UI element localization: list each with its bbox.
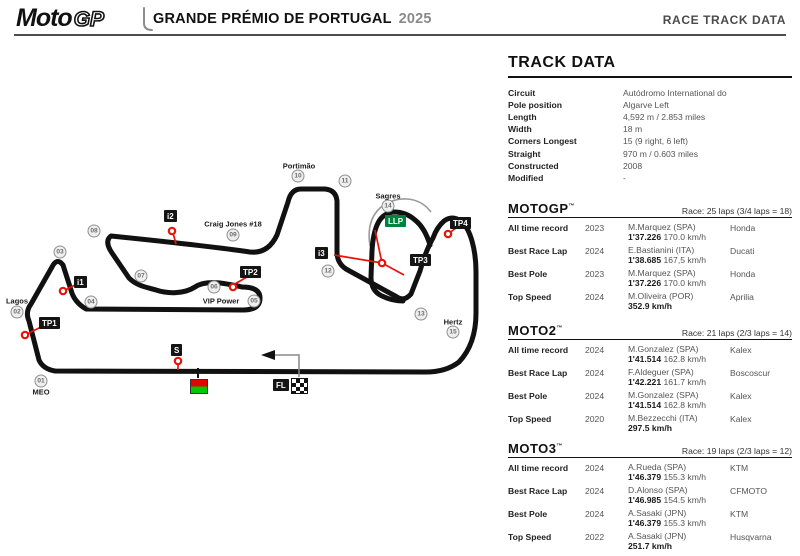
corner-marker-08: 08 bbox=[88, 225, 101, 238]
map-label-05: VIP Power bbox=[203, 297, 240, 306]
record-speed: 161.7 km/h bbox=[664, 377, 707, 387]
record-time: 1'41.514 bbox=[628, 400, 661, 410]
record-label: All time record bbox=[508, 344, 585, 367]
trademark-symbol: ™ bbox=[557, 326, 563, 332]
section-moto2-race-info: Race: 21 laps (2/3 laps = 14) bbox=[682, 328, 792, 338]
record-rider-cell: A.Sasaki (JPN) 1'46.379 155.3 km/h bbox=[628, 508, 730, 531]
record-time: 1'42.221 bbox=[628, 377, 661, 387]
record-label: Top Speed bbox=[508, 291, 585, 314]
section-moto2-title: MOTO2™ bbox=[508, 323, 563, 338]
record-rider: M.Gonzalez (SPA) bbox=[628, 344, 730, 354]
race-track-data-page: MotoGP GRANDE PRÉMIO DE PORTUGAL 2025 RA… bbox=[0, 0, 800, 556]
corner-marker-03: 03 bbox=[54, 246, 67, 259]
record-rider-cell: M.Marquez (SPA) 1'37.226 170.0 km/h bbox=[628, 268, 730, 291]
corner-marker-04: 04 bbox=[85, 296, 98, 309]
record-rider-cell: D.Alonso (SPA) 1'46.985 154.5 km/h bbox=[628, 485, 730, 508]
map-label-15: Hertz bbox=[444, 318, 463, 327]
track-data-label: Pole position bbox=[508, 100, 623, 110]
record-row: Best Race Lap 2024 E.Bastianini (ITA) 1'… bbox=[508, 245, 792, 268]
record-year: 2024 bbox=[585, 390, 628, 413]
record-rider-cell: M.Oliveira (POR) 352.9 km/h bbox=[628, 291, 730, 314]
record-year: 2024 bbox=[585, 485, 628, 508]
record-year: 2024 bbox=[585, 291, 628, 314]
record-row: Best Race Lap 2024 F.Aldeguer (SPA) 1'42… bbox=[508, 367, 792, 390]
record-time: 1'46.379 bbox=[628, 518, 661, 528]
map-label-02: Lagos bbox=[6, 297, 28, 306]
record-rider: A.Sasaki (JPN) bbox=[628, 531, 730, 541]
record-time: 1'37.226 bbox=[628, 278, 661, 288]
track-marker-i2: i2 bbox=[164, 210, 177, 222]
track-marker-llp: LLP bbox=[385, 215, 406, 227]
record-label: Best Pole bbox=[508, 508, 585, 531]
record-rider: M.Oliveira (POR) bbox=[628, 291, 730, 301]
track-marker-s: S bbox=[171, 344, 182, 356]
record-bike: Husqvarna bbox=[730, 531, 792, 554]
section-moto3-race-info: Race: 19 laps (2/3 laps = 12) bbox=[682, 446, 792, 456]
record-time: 1'46.379 bbox=[628, 472, 661, 482]
record-speed: 167,5 km/h bbox=[664, 255, 707, 265]
record-year: 2022 bbox=[585, 531, 628, 554]
record-row: Best Pole 2024 A.Sasaki (JPN) 1'46.379 1… bbox=[508, 508, 792, 531]
record-speed: 162.8 km/h bbox=[664, 354, 707, 364]
track-marker-tp4: TP4 bbox=[450, 217, 471, 229]
map-label-10: Portimão bbox=[283, 162, 316, 171]
track-data-row: Width 18 m bbox=[508, 123, 792, 135]
corner-marker-11: 11 bbox=[339, 175, 352, 188]
track-data-row: Constructed 2008 bbox=[508, 160, 792, 172]
track-data-row: Corners Longest 15 (9 right, 6 left) bbox=[508, 135, 792, 147]
record-bike: KTM bbox=[730, 508, 792, 531]
start-lights-flag bbox=[190, 379, 208, 394]
corner-marker-01: 01 bbox=[35, 375, 48, 388]
trademark-symbol: ™ bbox=[557, 444, 563, 450]
record-year: 2023 bbox=[585, 268, 628, 291]
record-time-line: 1'37.226 170.0 km/h bbox=[628, 232, 730, 242]
record-row: Best Pole 2024 M.Gonzalez (SPA) 1'41.514… bbox=[508, 390, 792, 413]
record-time-line: 251.7 km/h bbox=[628, 541, 730, 551]
record-bike: Honda bbox=[730, 222, 792, 245]
section-motogp-title: MOTOGP™ bbox=[508, 201, 575, 216]
corner-marker-14: 14 bbox=[382, 200, 395, 213]
record-speed: 154.5 km/h bbox=[664, 495, 707, 505]
record-row: All time record 2023 M.Marquez (SPA) 1'3… bbox=[508, 222, 792, 245]
record-label: All time record bbox=[508, 222, 585, 245]
track-marker-i1: i1 bbox=[74, 276, 87, 288]
record-bike: Kalex bbox=[730, 344, 792, 367]
record-rider: A.Sasaki (JPN) bbox=[628, 508, 730, 518]
record-rider: M.Gonzalez (SPA) bbox=[628, 390, 730, 400]
record-row: Best Race Lap 2024 D.Alonso (SPA) 1'46.9… bbox=[508, 485, 792, 508]
record-time: 352.9 km/h bbox=[628, 301, 672, 311]
record-time-line: 1'38.685 167,5 km/h bbox=[628, 255, 730, 265]
corner-marker-02: 02 bbox=[11, 306, 24, 319]
record-rider: A.Rueda (SPA) bbox=[628, 462, 730, 472]
record-year: 2024 bbox=[585, 508, 628, 531]
track-marker-tp1: TP1 bbox=[39, 317, 60, 329]
record-bike: Honda bbox=[730, 268, 792, 291]
track-data-label: Constructed bbox=[508, 161, 623, 171]
section-moto3-header: MOTO3™ Race: 19 laps (2/3 laps = 12) bbox=[508, 436, 792, 458]
record-bike: Kalex bbox=[730, 390, 792, 413]
corner-marker-13: 13 bbox=[415, 308, 428, 321]
record-bike: CFMOTO bbox=[730, 485, 792, 508]
record-label: Best Pole bbox=[508, 268, 585, 291]
record-rider: D.Alonso (SPA) bbox=[628, 485, 730, 495]
record-label: Best Pole bbox=[508, 390, 585, 413]
record-label: Top Speed bbox=[508, 531, 585, 554]
record-year: 2024 bbox=[585, 462, 628, 485]
record-year: 2024 bbox=[585, 245, 628, 268]
record-time: 1'46.985 bbox=[628, 495, 661, 505]
record-label: Top Speed bbox=[508, 413, 585, 436]
record-time-line: 297.5 km/h bbox=[628, 423, 730, 433]
section-moto3-title: MOTO3™ bbox=[508, 441, 563, 456]
track-data-value: 4,592 m / 2.853 miles bbox=[623, 112, 792, 122]
record-rider-cell: M.Gonzalez (SPA) 1'41.514 162.8 km/h bbox=[628, 390, 730, 413]
record-speed: 155.3 km/h bbox=[664, 518, 707, 528]
section-title-text: MOTO2 bbox=[508, 323, 557, 338]
record-rider: M.Marquez (SPA) bbox=[628, 268, 730, 278]
map-label-01: MEO bbox=[32, 388, 49, 397]
record-time: 251.7 km/h bbox=[628, 541, 672, 551]
record-label: Best Race Lap bbox=[508, 245, 585, 268]
record-time: 1'37.226 bbox=[628, 232, 661, 242]
record-speed: 170.0 km/h bbox=[664, 232, 707, 242]
record-year: 2020 bbox=[585, 413, 628, 436]
record-rider: M.Bezzecchi (ITA) bbox=[628, 413, 730, 423]
section-moto2: MOTO2™ Race: 21 laps (2/3 laps = 14) All… bbox=[508, 318, 792, 436]
section-motogp: MOTOGP™ Race: 25 laps (3/4 laps = 18) Al… bbox=[508, 196, 792, 314]
record-rider-cell: E.Bastianini (ITA) 1'38.685 167,5 km/h bbox=[628, 245, 730, 268]
track-marker-tp3: TP3 bbox=[410, 254, 431, 266]
section-moto2-rows: All time record 2024 M.Gonzalez (SPA) 1'… bbox=[508, 344, 792, 436]
corner-marker-09: 09 bbox=[227, 229, 240, 242]
section-title-text: MOTO3 bbox=[508, 441, 557, 456]
record-row: All time record 2024 A.Rueda (SPA) 1'46.… bbox=[508, 462, 792, 485]
record-time-line: 1'46.379 155.3 km/h bbox=[628, 518, 730, 528]
record-label: Best Race Lap bbox=[508, 485, 585, 508]
section-motogp-race-info: Race: 25 laps (3/4 laps = 18) bbox=[682, 206, 792, 216]
section-moto3-rows: All time record 2024 A.Rueda (SPA) 1'46.… bbox=[508, 462, 792, 554]
track-data-value: 15 (9 right, 6 left) bbox=[623, 136, 792, 146]
record-bike: Boscoscur bbox=[730, 367, 792, 390]
record-time-line: 1'37.226 170.0 km/h bbox=[628, 278, 730, 288]
record-row: Top Speed 2022 A.Sasaki (JPN) 251.7 km/h… bbox=[508, 531, 792, 554]
track-data-label: Modified bbox=[508, 173, 623, 183]
track-data-row: Straight 970 m / 0.603 miles bbox=[508, 147, 792, 159]
track-data-label: Circuit bbox=[508, 88, 623, 98]
record-label: Best Race Lap bbox=[508, 367, 585, 390]
record-rider: E.Bastianini (ITA) bbox=[628, 245, 730, 255]
corner-marker-10: 10 bbox=[292, 170, 305, 183]
record-row: All time record 2024 M.Gonzalez (SPA) 1'… bbox=[508, 344, 792, 367]
track-data-label: Length bbox=[508, 112, 623, 122]
record-rider: F.Aldeguer (SPA) bbox=[628, 367, 730, 377]
section-title-text: MOTOGP bbox=[508, 201, 569, 216]
track-data-value: Autódromo International do bbox=[623, 88, 792, 98]
record-rider-cell: A.Rueda (SPA) 1'46.379 155.3 km/h bbox=[628, 462, 730, 485]
record-rider: M.Marquez (SPA) bbox=[628, 222, 730, 232]
record-year: 2024 bbox=[585, 367, 628, 390]
track-data-rule bbox=[508, 76, 792, 78]
record-time: 297.5 km/h bbox=[628, 423, 672, 433]
record-time-line: 1'46.985 154.5 km/h bbox=[628, 495, 730, 505]
track-data-row: Modified - bbox=[508, 172, 792, 184]
section-motogp-header: MOTOGP™ Race: 25 laps (3/4 laps = 18) bbox=[508, 196, 792, 218]
track-data-row: Circuit Autódromo International do bbox=[508, 87, 792, 99]
record-rider-cell: M.Gonzalez (SPA) 1'41.514 162.8 km/h bbox=[628, 344, 730, 367]
record-time-line: 1'41.514 162.8 km/h bbox=[628, 400, 730, 410]
track-data-label: Width bbox=[508, 124, 623, 134]
record-time: 1'41.514 bbox=[628, 354, 661, 364]
checkered-flag-icon bbox=[291, 378, 308, 394]
track-data-value: - bbox=[623, 173, 792, 183]
record-bike: Aprilia bbox=[730, 291, 792, 314]
corner-marker-12: 12 bbox=[322, 265, 335, 278]
section-moto3: MOTO3™ Race: 19 laps (2/3 laps = 12) All… bbox=[508, 436, 792, 554]
record-rider-cell: M.Marquez (SPA) 1'37.226 170.0 km/h bbox=[628, 222, 730, 245]
map-label-09: Craig Jones #18 bbox=[204, 220, 262, 229]
track-data-value: 2008 bbox=[623, 161, 792, 171]
record-bike: KTM bbox=[730, 462, 792, 485]
track-data-label: Corners Longest bbox=[508, 136, 623, 146]
corner-marker-05: 05 bbox=[248, 295, 261, 308]
record-time-line: 352.9 km/h bbox=[628, 301, 730, 311]
record-row: Top Speed 2020 M.Bezzecchi (ITA) 297.5 k… bbox=[508, 413, 792, 436]
record-speed: 170.0 km/h bbox=[664, 278, 707, 288]
record-bike: Kalex bbox=[730, 413, 792, 436]
section-motogp-rows: All time record 2023 M.Marquez (SPA) 1'3… bbox=[508, 222, 792, 314]
record-row: Top Speed 2024 M.Oliveira (POR) 352.9 km… bbox=[508, 291, 792, 314]
track-data-value: 18 m bbox=[623, 124, 792, 134]
record-speed: 162.8 km/h bbox=[664, 400, 707, 410]
track-data-table: Circuit Autódromo International do Pole … bbox=[508, 87, 792, 184]
record-speed: 155.3 km/h bbox=[664, 472, 707, 482]
record-row: Best Pole 2023 M.Marquez (SPA) 1'37.226 … bbox=[508, 268, 792, 291]
corner-marker-06: 06 bbox=[208, 281, 221, 294]
record-time-line: 1'41.514 162.8 km/h bbox=[628, 354, 730, 364]
trademark-symbol: ™ bbox=[569, 204, 575, 210]
start-line-tick bbox=[197, 368, 199, 378]
record-year: 2024 bbox=[585, 344, 628, 367]
track-data-row: Length 4,592 m / 2.853 miles bbox=[508, 111, 792, 123]
map-label-14: Sagres bbox=[375, 192, 400, 201]
record-time-line: 1'46.379 155.3 km/h bbox=[628, 472, 730, 482]
track-marker-tp2: TP2 bbox=[240, 266, 261, 278]
record-time-line: 1'42.221 161.7 km/h bbox=[628, 377, 730, 387]
record-bike: Ducati bbox=[730, 245, 792, 268]
track-marker-i3: i3 bbox=[315, 247, 328, 259]
track-data-title: TRACK DATA bbox=[508, 54, 616, 72]
record-label: All time record bbox=[508, 462, 585, 485]
track-data-label: Straight bbox=[508, 149, 623, 159]
record-rider-cell: A.Sasaki (JPN) 251.7 km/h bbox=[628, 531, 730, 554]
track-marker-fl: FL bbox=[273, 379, 289, 391]
record-time: 1'38.685 bbox=[628, 255, 661, 265]
direction-arrow-icon bbox=[261, 350, 275, 360]
record-rider-cell: F.Aldeguer (SPA) 1'42.221 161.7 km/h bbox=[628, 367, 730, 390]
track-data-row: Pole position Algarve Left bbox=[508, 99, 792, 111]
record-rider-cell: M.Bezzecchi (ITA) 297.5 km/h bbox=[628, 413, 730, 436]
corner-marker-07: 07 bbox=[135, 270, 148, 283]
corner-marker-15: 15 bbox=[447, 326, 460, 339]
track-data-value: Algarve Left bbox=[623, 100, 792, 110]
record-year: 2023 bbox=[585, 222, 628, 245]
track-data-value: 970 m / 0.603 miles bbox=[623, 149, 792, 159]
section-moto2-header: MOTO2™ Race: 21 laps (2/3 laps = 14) bbox=[508, 318, 792, 340]
